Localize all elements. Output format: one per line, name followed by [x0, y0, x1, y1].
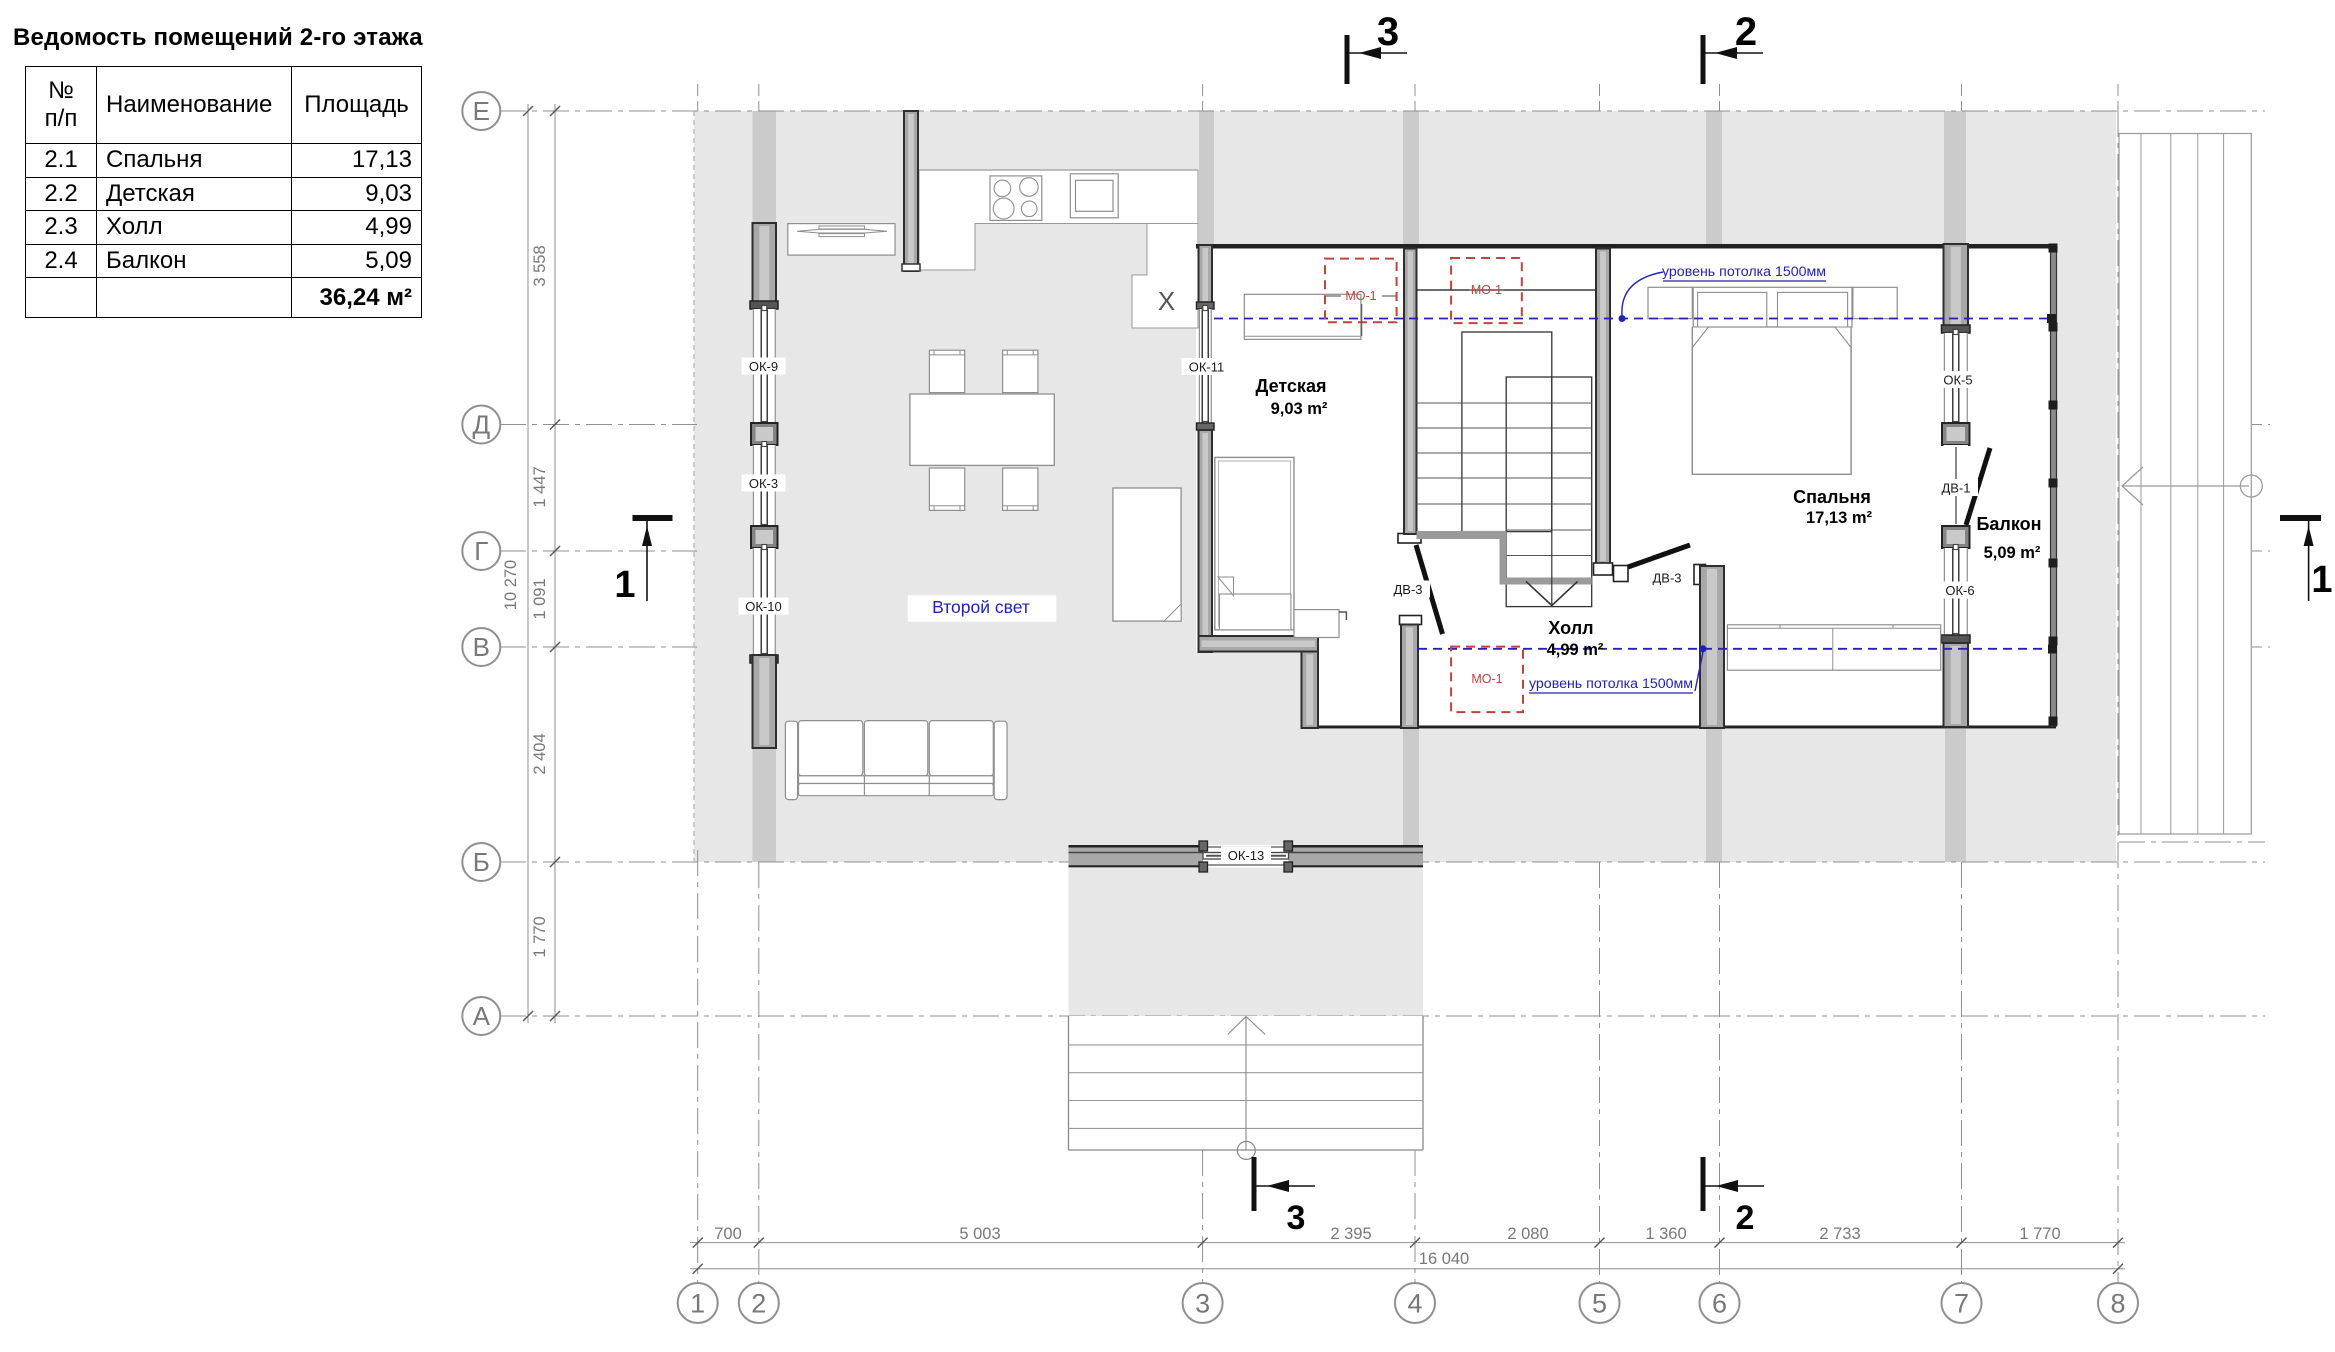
svg-text:2 395: 2 395	[1330, 1225, 1371, 1243]
svg-text:2: 2	[1735, 10, 1757, 54]
svg-text:1 447: 1 447	[531, 466, 549, 507]
svg-text:X: X	[1158, 286, 1175, 316]
svg-text:8: 8	[2110, 1289, 2125, 1319]
svg-text:1 091: 1 091	[531, 578, 549, 619]
svg-text:Холл: Холл	[1548, 618, 1593, 638]
svg-text:4,99 m²: 4,99 m²	[1547, 641, 1604, 659]
svg-text:17,13 m²: 17,13 m²	[1806, 509, 1873, 527]
svg-text:3 558: 3 558	[531, 245, 549, 286]
svg-text:А: А	[473, 1001, 491, 1031]
svg-text:7: 7	[1954, 1289, 1969, 1319]
svg-text:ОК-5: ОК-5	[1943, 373, 1972, 388]
svg-text:2 733: 2 733	[1819, 1225, 1860, 1243]
svg-text:Д: Д	[472, 410, 490, 440]
svg-text:1 770: 1 770	[531, 916, 549, 957]
svg-text:1: 1	[690, 1289, 705, 1319]
svg-text:10 270: 10 270	[502, 560, 520, 610]
svg-text:Е: Е	[473, 96, 490, 126]
svg-text:ОК-13: ОК-13	[1228, 848, 1264, 863]
svg-text:1 360: 1 360	[1645, 1225, 1686, 1243]
svg-text:ОК-9: ОК-9	[749, 359, 778, 374]
svg-text:ОК-10: ОК-10	[745, 599, 781, 614]
svg-text:5: 5	[1592, 1289, 1607, 1319]
svg-text:2: 2	[751, 1289, 766, 1319]
svg-text:16 040: 16 040	[1419, 1250, 1469, 1268]
svg-text:ОК-6: ОК-6	[1945, 583, 1974, 598]
svg-text:2 404: 2 404	[531, 733, 549, 774]
svg-text:ДВ-3: ДВ-3	[1393, 582, 1422, 597]
svg-text:В: В	[473, 632, 490, 662]
svg-text:Второй свет: Второй свет	[932, 597, 1030, 617]
svg-text:3: 3	[1287, 1199, 1306, 1237]
svg-text:ОК-11: ОК-11	[1189, 360, 1225, 375]
svg-text:3: 3	[1377, 10, 1399, 54]
svg-text:9,03 m²: 9,03 m²	[1271, 400, 1328, 418]
svg-text:МО-1: МО-1	[1471, 672, 1502, 686]
svg-text:5,09 m²: 5,09 m²	[1984, 544, 2041, 562]
svg-text:1: 1	[614, 564, 635, 606]
svg-text:ДВ-3: ДВ-3	[1652, 571, 1681, 586]
svg-text:МО-1: МО-1	[1345, 289, 1376, 303]
svg-text:Балкон: Балкон	[1976, 514, 2041, 534]
svg-text:2: 2	[1736, 1199, 1755, 1237]
svg-text:Б: Б	[473, 847, 490, 877]
svg-text:уровень потолка 1500мм: уровень потолка 1500мм	[1662, 264, 1826, 280]
svg-text:1 770: 1 770	[2019, 1225, 2060, 1243]
svg-text:ДВ-1: ДВ-1	[1941, 481, 1970, 496]
svg-text:4: 4	[1407, 1289, 1422, 1319]
svg-text:Детская: Детская	[1256, 376, 1327, 396]
svg-text:5 003: 5 003	[959, 1225, 1000, 1243]
svg-text:1: 1	[2311, 559, 2332, 601]
svg-text:6: 6	[1712, 1289, 1727, 1319]
svg-text:2 080: 2 080	[1507, 1225, 1548, 1243]
svg-text:700: 700	[714, 1225, 742, 1243]
svg-text:3: 3	[1195, 1289, 1210, 1319]
svg-text:МО-1: МО-1	[1471, 283, 1502, 297]
svg-text:уровень потолка 1500мм: уровень потолка 1500мм	[1529, 676, 1693, 692]
svg-text:ОК-3: ОК-3	[749, 476, 778, 491]
svg-text:Г: Г	[474, 536, 488, 566]
svg-text:Спальня: Спальня	[1793, 487, 1871, 507]
